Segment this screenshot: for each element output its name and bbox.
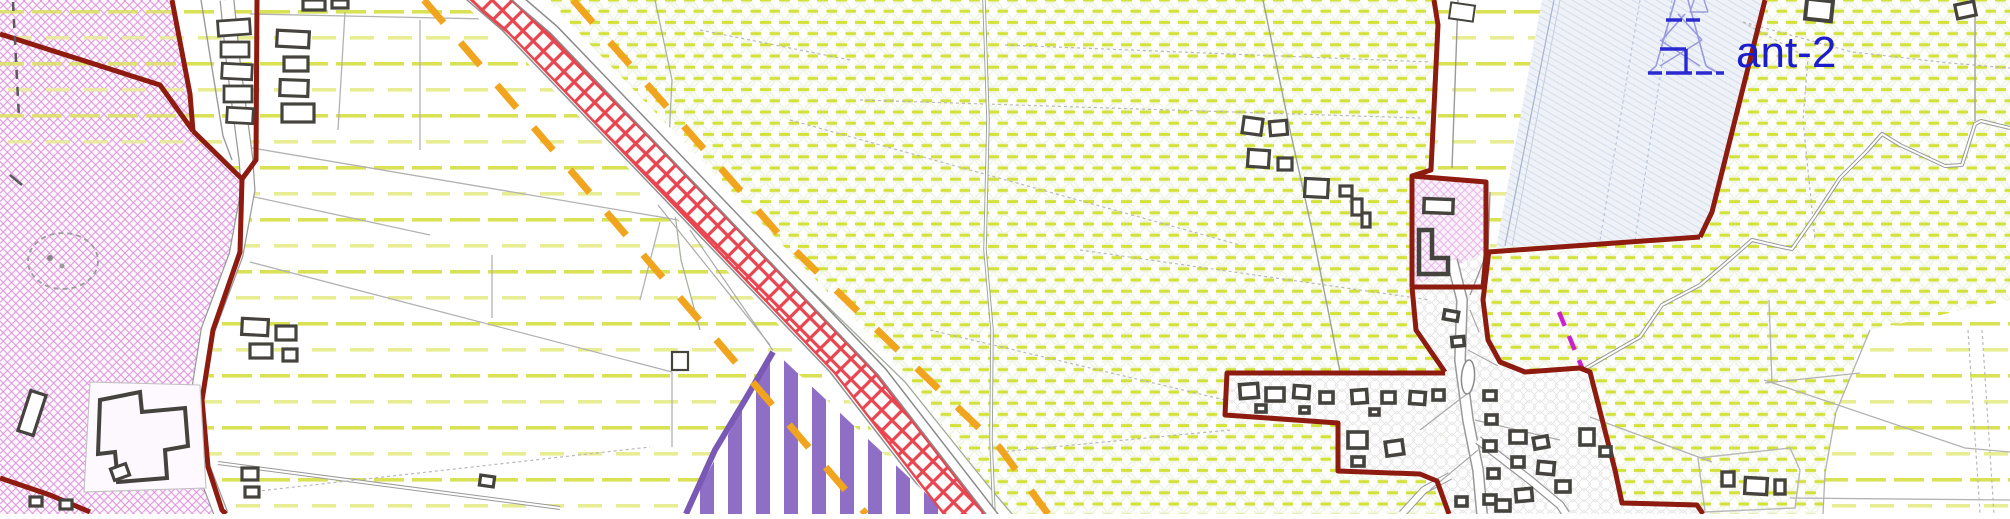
svg-text:ant-2: ant-2	[1736, 28, 1836, 77]
